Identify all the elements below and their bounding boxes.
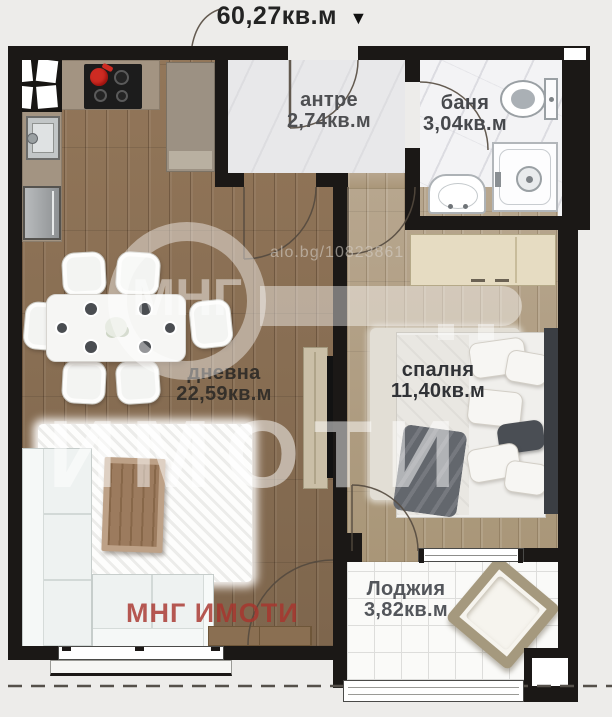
room-name: антре xyxy=(270,90,388,111)
bathroom-vent-notch xyxy=(564,48,586,60)
dining-chair xyxy=(115,359,162,406)
sofa-bottom-section xyxy=(92,574,214,648)
room-area: 3,04кв.м xyxy=(406,114,524,135)
wall-bath-bottom xyxy=(415,216,562,230)
fridge xyxy=(23,186,61,240)
bed-throw-blanket xyxy=(392,424,467,518)
room-label-living: дневна 22,59кв.м xyxy=(158,363,290,405)
wall-left xyxy=(8,46,22,660)
sideboard xyxy=(208,626,312,646)
bed-pillow xyxy=(503,459,549,497)
kitchen-sink xyxy=(26,116,60,160)
living-window-sill xyxy=(50,660,232,676)
living-window xyxy=(58,646,224,660)
room-label-bedroom: спалня 11,40кв.м xyxy=(372,360,504,402)
room-name: спалня xyxy=(372,360,504,381)
loggia-corner-notch xyxy=(532,658,568,686)
wall-bottom-a xyxy=(8,646,58,660)
headboard xyxy=(544,328,558,514)
loggia-window xyxy=(343,680,524,702)
sofa-left-section xyxy=(22,448,92,648)
room-label-entry: антре 2,74кв.м xyxy=(270,90,388,132)
wall-entry-bottom-a xyxy=(215,173,244,187)
dining-chair xyxy=(188,298,235,350)
wall-bedroom-right xyxy=(558,230,578,652)
wall-loggia-step xyxy=(333,533,362,562)
down-arrow-icon: ▼ xyxy=(350,8,368,28)
wall-top-left xyxy=(8,46,288,60)
wall-loggia-top-right xyxy=(522,548,558,562)
room-area: 22,59кв.м xyxy=(158,384,290,405)
room-name: дневна xyxy=(158,363,290,384)
floor-plan: антре 2,74кв.м баня 3,04кв.м дневна 22,5… xyxy=(0,0,612,717)
room-label-loggia: Лоджия 3,82кв.м xyxy=(348,579,464,621)
dining-chair xyxy=(115,251,162,298)
window-pane xyxy=(36,85,58,109)
dining-chair xyxy=(61,359,107,405)
shower xyxy=(492,142,558,212)
room-area: 2,74кв.м xyxy=(270,111,388,132)
wall-bathroom-right xyxy=(562,46,590,230)
flower-centerpiece xyxy=(105,317,127,337)
wall-bottom-b xyxy=(224,646,347,660)
room-area: 3,82кв.м xyxy=(348,600,464,621)
dining-chair xyxy=(61,251,107,297)
wall-bath-left-top xyxy=(405,60,420,82)
red-pan xyxy=(90,68,108,86)
window-pane xyxy=(36,59,59,83)
coffee-table xyxy=(101,457,165,553)
stove xyxy=(84,64,142,109)
total-area-header: 60,27кв.м ▼ xyxy=(142,2,442,31)
wall-entry-closet xyxy=(215,60,228,187)
wall-living-bedroom xyxy=(333,187,347,688)
tv-console xyxy=(303,347,328,489)
entry-closet xyxy=(166,62,215,172)
total-area-value: 60,27кв.м xyxy=(217,2,337,30)
room-area: 11,40кв.м xyxy=(372,381,504,402)
wardrobe xyxy=(410,234,556,286)
room-name: баня xyxy=(406,93,524,114)
room-name: Лоджия xyxy=(348,579,464,600)
wall-entry-bottom-b xyxy=(316,173,348,187)
faucet-icon xyxy=(27,133,38,144)
shower-head-icon xyxy=(516,166,542,192)
toilet-tank xyxy=(544,78,558,120)
room-label-bathroom: баня 3,04кв.м xyxy=(406,93,524,135)
bathroom-sink xyxy=(428,174,486,214)
dining-table xyxy=(46,294,186,362)
bedroom-loggia-window xyxy=(418,548,524,562)
wall-top-right xyxy=(358,46,590,60)
